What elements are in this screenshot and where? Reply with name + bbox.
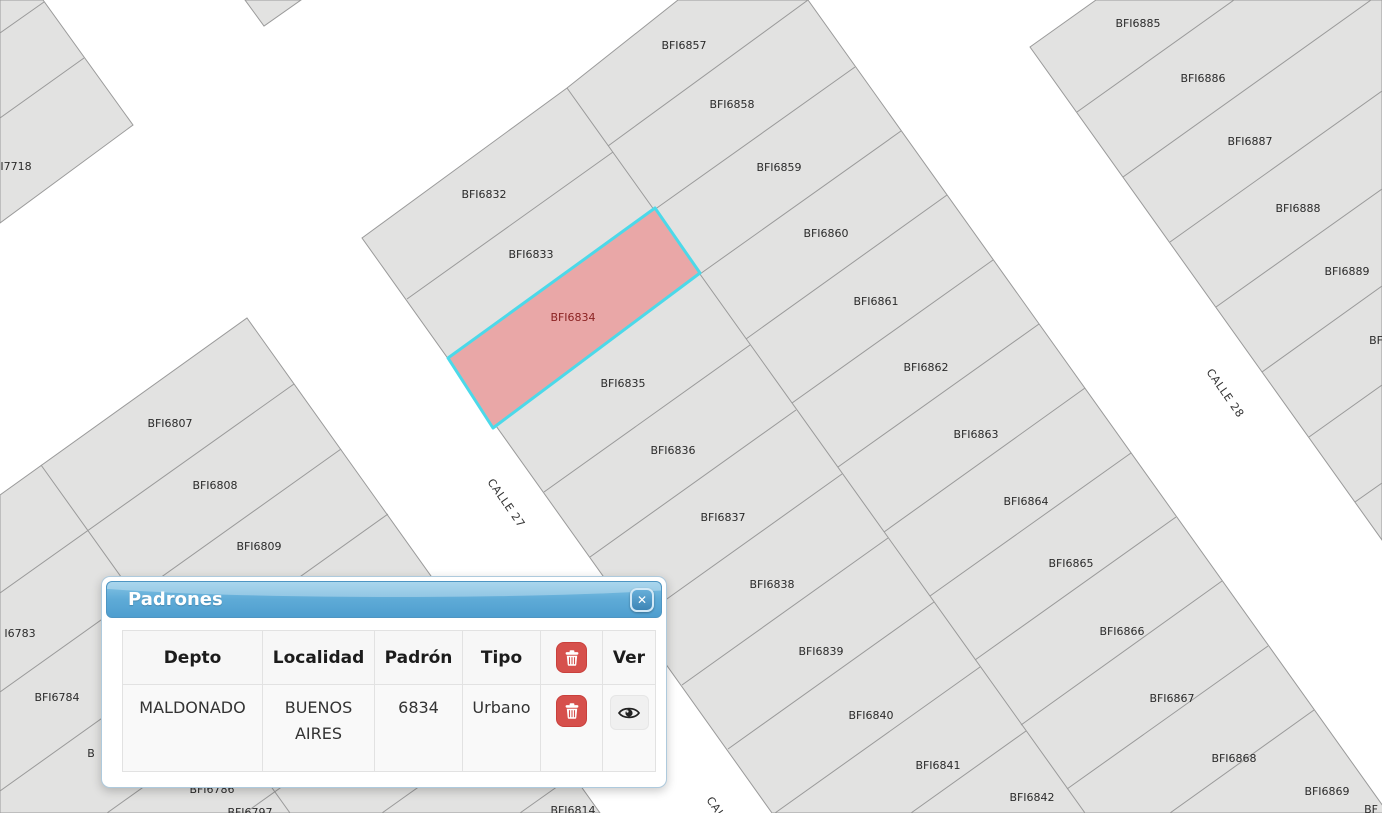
popup-header[interactable]: Padrones ✕ <box>106 581 662 618</box>
parcel-label: BFI6835 <box>600 377 645 390</box>
parcel-label: BFI6885 <box>1115 17 1160 30</box>
cell-delete <box>541 685 603 772</box>
parcel-label: B <box>87 747 95 760</box>
parcel-label: BFI6862 <box>903 361 948 374</box>
parcel-label: BFI6866 <box>1099 625 1144 638</box>
delete-all-button[interactable] <box>556 642 587 673</box>
street-label: CALLE 27 <box>485 476 528 530</box>
parcel-label: BFI6809 <box>236 540 281 553</box>
parcel-label: BF <box>1369 334 1382 347</box>
padrones-popup: Padrones ✕ Depto Localidad Padrón Tipo <box>101 576 667 788</box>
popup-body: Depto Localidad Padrón Tipo <box>106 618 662 772</box>
parcel-label: BFI6814 <box>550 804 595 813</box>
parcel-label: BFI6863 <box>953 428 998 441</box>
cell-localidad: BUENOS AIRES <box>263 685 375 772</box>
parcel-label: BFI6869 <box>1304 785 1349 798</box>
close-button[interactable]: ✕ <box>630 588 654 612</box>
parcel-label: BFI6838 <box>749 578 794 591</box>
city-block-northwest[interactable] <box>0 0 133 223</box>
parcel-label: BFI6889 <box>1324 265 1369 278</box>
parcel-label: BFI6859 <box>756 161 801 174</box>
cell-tipo: Urbano <box>463 685 541 772</box>
col-header-delete <box>541 631 603 685</box>
cell-depto: MALDONADO <box>123 685 263 772</box>
parcel-label: BFI6861 <box>853 295 898 308</box>
table-header-row: Depto Localidad Padrón Tipo <box>123 631 656 685</box>
popup-title: Padrones <box>128 589 223 610</box>
city-block-north-corner[interactable] <box>245 0 301 26</box>
col-header-padron: Padrón <box>375 631 463 685</box>
close-icon: ✕ <box>637 593 647 607</box>
col-header-ver: Ver <box>603 631 656 685</box>
parcel-label: BFI6836 <box>650 444 695 457</box>
col-header-depto: Depto <box>123 631 263 685</box>
table-row: MALDONADO BUENOS AIRES 6834 Urbano <box>123 685 656 772</box>
parcel-label: BFI6888 <box>1275 202 1320 215</box>
parcel-label: BF <box>1364 803 1378 813</box>
app-window: BFI6857BFI6858BFI6859BFI6860BFI6861BFI68… <box>0 0 1382 813</box>
selected-parcel-label: BFI6834 <box>550 311 595 324</box>
parcel-label: BFI6841 <box>915 759 960 772</box>
col-header-tipo: Tipo <box>463 631 541 685</box>
parcel-label: BFI6860 <box>803 227 848 240</box>
street-label: CALLE 27 <box>704 794 747 813</box>
eye-icon <box>618 705 640 721</box>
parcel-label: BFI6842 <box>1009 791 1054 804</box>
parcel-label: BFI6858 <box>709 98 754 111</box>
parcel-label: BFI6784 <box>34 691 79 704</box>
parcel-label: BFI6857 <box>661 39 706 52</box>
parcel-label: BFI6833 <box>508 248 553 261</box>
parcel-label: BFI6867 <box>1149 692 1194 705</box>
col-header-localidad: Localidad <box>263 631 375 685</box>
parcel-label: BFI6865 <box>1048 557 1093 570</box>
parcel-label: BFI6886 <box>1180 72 1225 85</box>
trash-icon <box>565 703 579 719</box>
parcel-label: BFI6807 <box>147 417 192 430</box>
parcel-label: BFI6808 <box>192 479 237 492</box>
parcel-label: BFI6840 <box>848 709 893 722</box>
parcel-label: BFI6887 <box>1227 135 1272 148</box>
trash-icon <box>565 650 579 666</box>
street-label: CALLE 28 <box>1204 366 1247 420</box>
parcel-label: BFI6837 <box>700 511 745 524</box>
parcel-label: I7718 <box>0 160 31 173</box>
parcel-label: BFI6868 <box>1211 752 1256 765</box>
view-row-button[interactable] <box>610 695 649 730</box>
cell-ver <box>603 685 656 772</box>
parcel-label: BFI6832 <box>461 188 506 201</box>
cell-padron: 6834 <box>375 685 463 772</box>
padrones-table: Depto Localidad Padrón Tipo <box>122 630 656 772</box>
parcel-label: BFI6797 <box>227 806 272 813</box>
parcel-label: I6783 <box>4 627 35 640</box>
parcel-label: BFI6839 <box>798 645 843 658</box>
delete-row-button[interactable] <box>556 695 587 727</box>
parcel-label: BFI6864 <box>1003 495 1048 508</box>
